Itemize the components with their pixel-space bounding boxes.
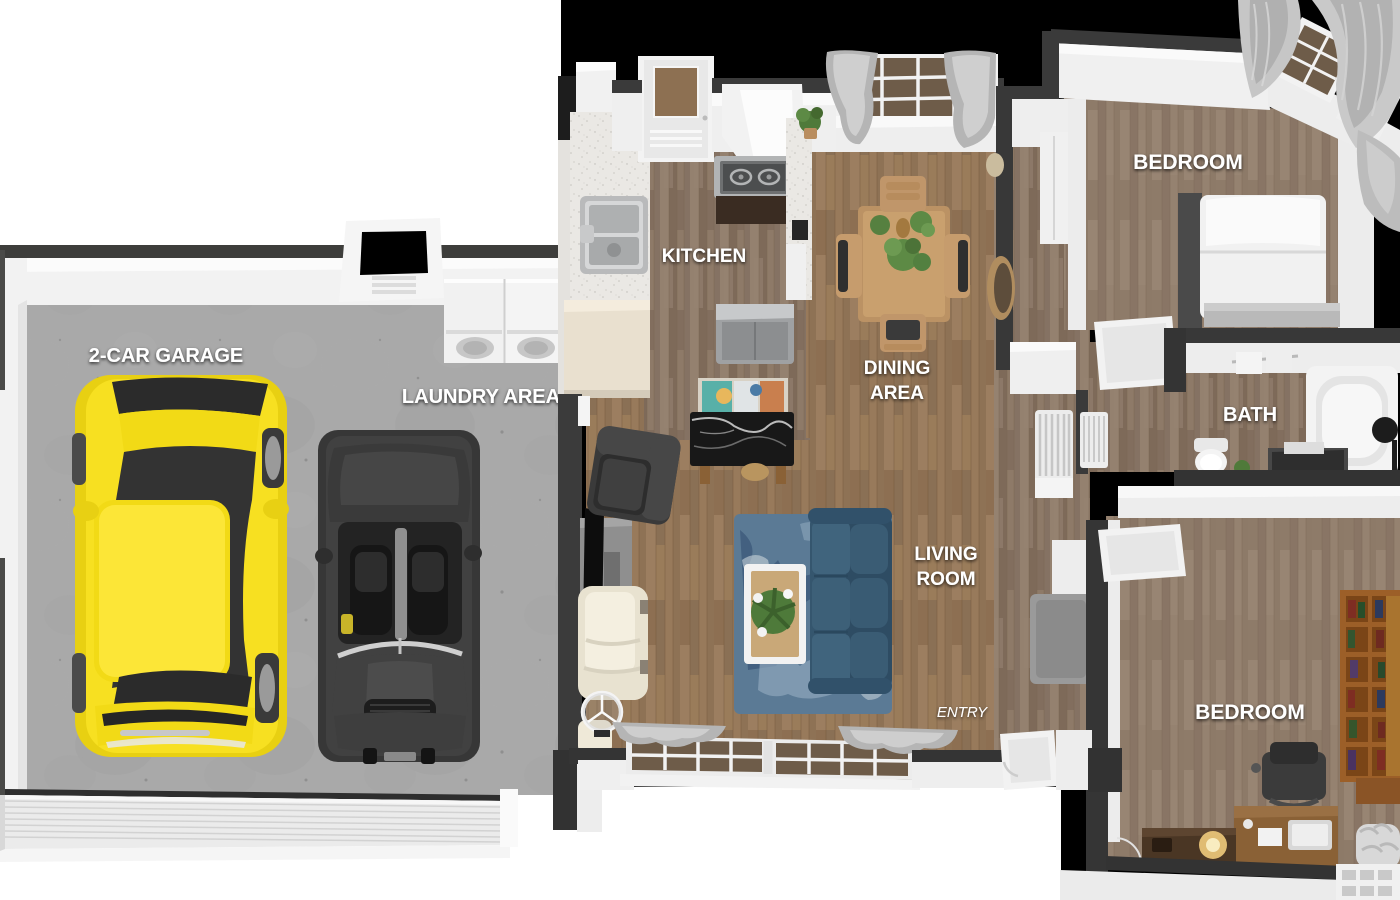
svg-text:DINING: DINING bbox=[864, 358, 931, 379]
svg-text:ENTRY: ENTRY bbox=[937, 704, 988, 721]
svg-text:BATH: BATH bbox=[1223, 404, 1277, 426]
svg-text:BEDROOM: BEDROOM bbox=[1195, 701, 1305, 724]
svg-text:BEDROOM: BEDROOM bbox=[1133, 151, 1243, 174]
svg-text:2-CAR GARAGE: 2-CAR GARAGE bbox=[89, 345, 243, 367]
svg-text:AREA: AREA bbox=[870, 383, 924, 404]
svg-text:KITCHEN: KITCHEN bbox=[662, 246, 746, 267]
svg-text:ROOM: ROOM bbox=[916, 569, 975, 590]
svg-text:LAUNDRY AREA: LAUNDRY AREA bbox=[402, 386, 560, 408]
svg-text:LIVING: LIVING bbox=[914, 544, 977, 565]
